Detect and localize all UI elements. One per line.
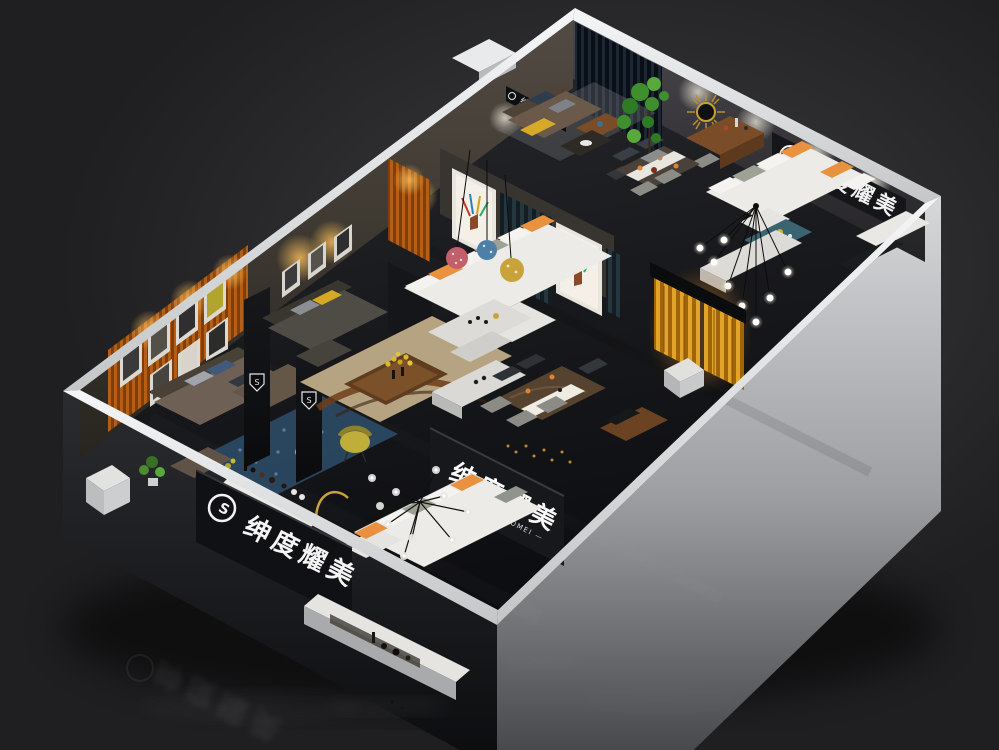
lantern-gold [500,258,524,282]
shield-letter-1: S [254,378,259,387]
showroom-svg: S S [0,0,999,750]
lantern-blue [477,240,497,260]
shield-letter-2: S [306,396,311,405]
lantern-pink [446,247,468,269]
showroom-render: S S [0,0,999,750]
teal-curtain-2 [606,248,620,318]
